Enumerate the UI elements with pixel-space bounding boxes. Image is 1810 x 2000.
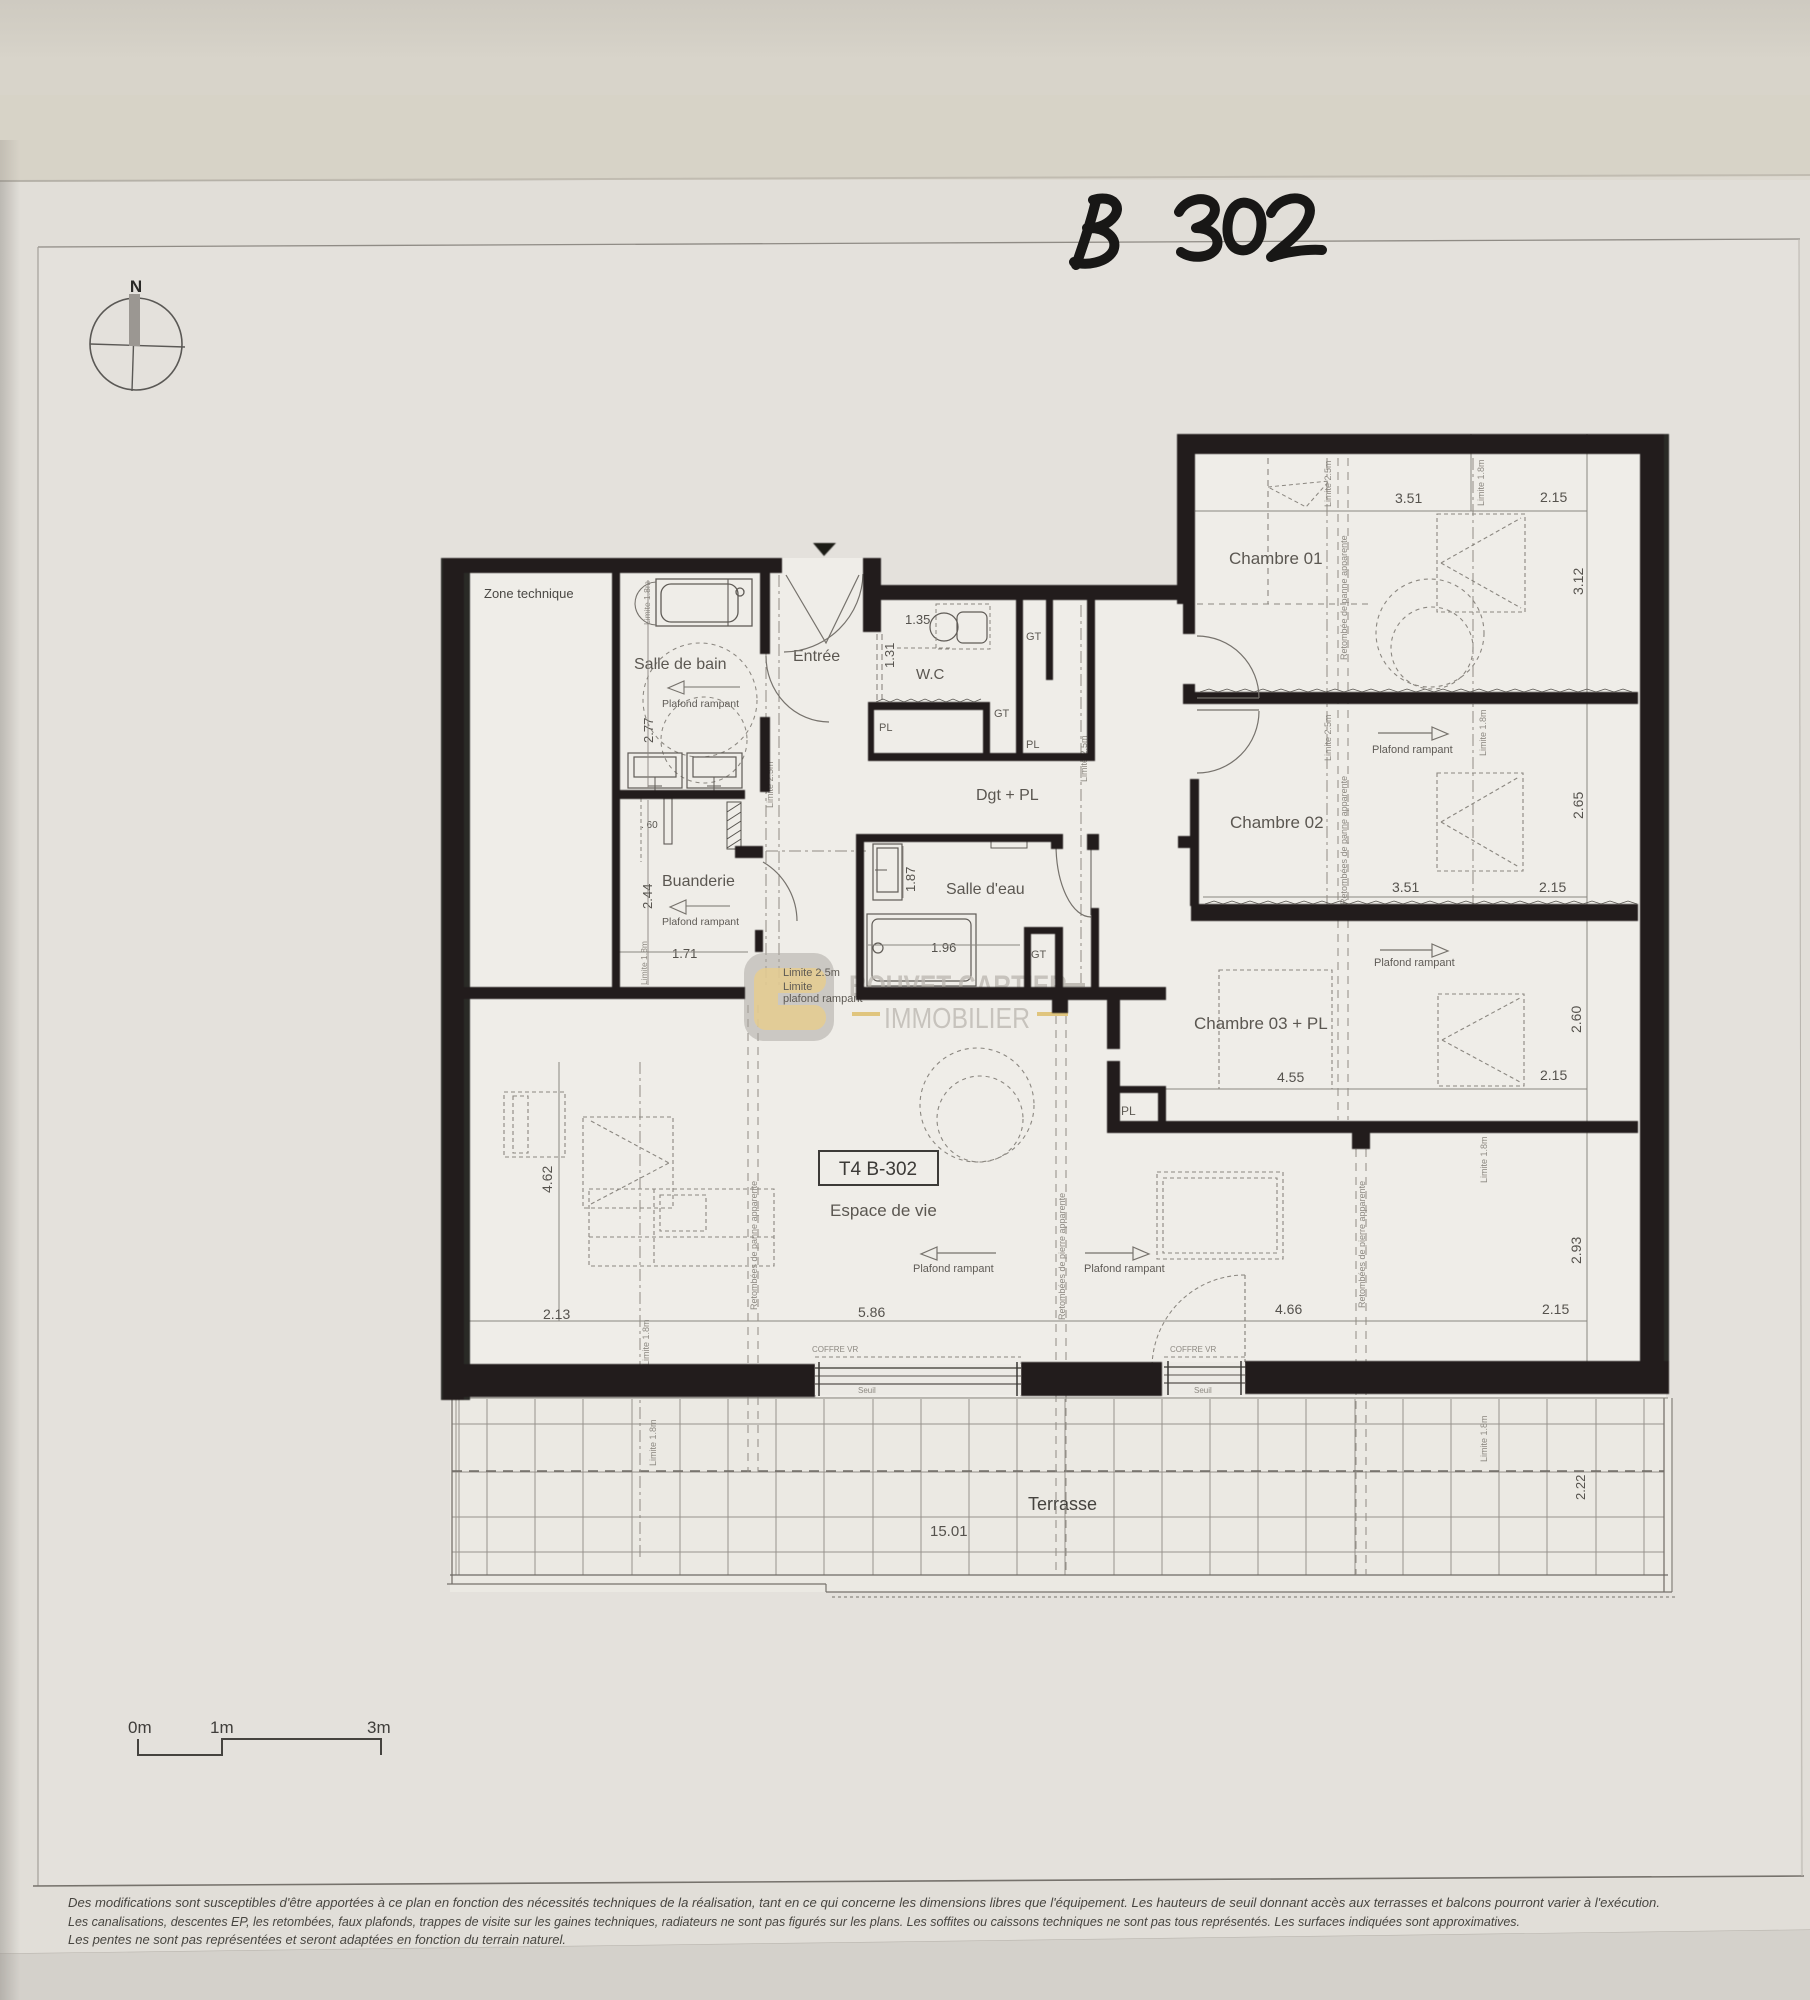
svg-text:Retombées de pierre apparente: Retombées de pierre apparente [1357, 1181, 1367, 1308]
svg-text:Salle d'eau: Salle d'eau [946, 881, 1025, 898]
svg-text:Retombées de panne apparente: Retombées de panne apparente [1339, 776, 1349, 905]
svg-text:2.15: 2.15 [1539, 879, 1566, 895]
svg-text:Buanderie: Buanderie [662, 873, 735, 890]
svg-text:COFFRE VR: COFFRE VR [1170, 1345, 1216, 1354]
svg-text:Limite 1.8m: Limite 1.8m [1479, 1136, 1489, 1183]
svg-text:2.77: 2.77 [641, 718, 656, 743]
svg-text:Retombées de pierre apparente: Retombées de pierre apparente [1057, 1193, 1067, 1320]
svg-text:Limite 1.8m: Limite 1.8m [648, 1419, 658, 1466]
svg-text:W.C: W.C [916, 666, 944, 683]
svg-text:Limite 1.8m: Limite 1.8m [641, 1319, 651, 1366]
svg-text:Terrasse: Terrasse [1028, 1494, 1097, 1514]
svg-text:Limite 2.5m: Limite 2.5m [1323, 714, 1333, 761]
svg-text:1.35: 1.35 [905, 612, 930, 627]
svg-text:plafond rampant: plafond rampant [783, 993, 863, 1005]
svg-text:Limite 1.8m: Limite 1.8m [1479, 1415, 1489, 1462]
svg-text:. 60: . 60 [641, 820, 658, 831]
svg-text:Plafond rampant: Plafond rampant [1372, 744, 1453, 756]
svg-text:Dgt + PL: Dgt + PL [976, 787, 1039, 804]
svg-text:1m: 1m [210, 1718, 234, 1737]
svg-text:Les pentes ne sont pas représe: Les pentes ne sont pas représentées et s… [68, 1932, 566, 1947]
svg-text:5.86: 5.86 [858, 1304, 885, 1320]
svg-text:3.51: 3.51 [1392, 879, 1419, 895]
svg-text:Limite: Limite [783, 981, 812, 993]
svg-text:15.01: 15.01 [930, 1523, 968, 1540]
svg-text:GT: GT [1031, 949, 1047, 961]
svg-text:Plafond rampant: Plafond rampant [913, 1263, 994, 1275]
svg-text:GT: GT [1026, 631, 1042, 643]
svg-text:Limite 1.8m: Limite 1.8m [1476, 459, 1486, 506]
svg-text:IMMOBILIER: IMMOBILIER [884, 1003, 1030, 1035]
svg-text:PL: PL [1026, 739, 1039, 751]
svg-text:2.44: 2.44 [640, 884, 655, 909]
svg-text:PL: PL [879, 722, 892, 734]
svg-text:1.96: 1.96 [931, 940, 956, 955]
svg-text:3m: 3m [367, 1718, 391, 1737]
svg-text:N: N [130, 277, 142, 296]
svg-text:1.87: 1.87 [903, 867, 918, 892]
svg-text:Limite 2.5m: Limite 2.5m [783, 967, 840, 979]
svg-text:Limite 2.5m: Limite 2.5m [1323, 460, 1333, 507]
svg-text:1.31: 1.31 [882, 643, 897, 668]
svg-text:3.12: 3.12 [1570, 568, 1586, 595]
svg-text:Espace de vie: Espace de vie [830, 1201, 937, 1220]
svg-text:T4 B-302: T4 B-302 [839, 1159, 917, 1180]
svg-text:2.93: 2.93 [1568, 1237, 1584, 1264]
svg-text:Retombées de panne apparente: Retombées de panne apparente [749, 1181, 759, 1310]
svg-text:Limite 1.8m: Limite 1.8m [642, 581, 652, 625]
svg-text:2.15: 2.15 [1540, 489, 1567, 505]
svg-text:1.71: 1.71 [672, 946, 697, 961]
svg-text:4.66: 4.66 [1275, 1301, 1302, 1317]
svg-text:Retombée de panne apparente: Retombée de panne apparente [1339, 535, 1349, 660]
svg-text:Chambre 02: Chambre 02 [1230, 813, 1324, 832]
svg-text:Des modifications sont suscept: Des modifications sont susceptibles d'êt… [68, 1895, 1660, 1910]
svg-text:4.55: 4.55 [1277, 1069, 1304, 1085]
svg-text:2.15: 2.15 [1540, 1067, 1567, 1083]
svg-text:Seuil: Seuil [858, 1386, 876, 1395]
svg-text:Plafond rampant: Plafond rampant [1374, 957, 1455, 969]
svg-text:Chambre 03 + PL: Chambre 03 + PL [1194, 1014, 1328, 1033]
svg-text:2.60: 2.60 [1568, 1006, 1584, 1033]
svg-text:Seuil: Seuil [1194, 1386, 1212, 1395]
svg-text:Les canalisations, descentes E: Les canalisations, descentes EP, les ret… [68, 1914, 1520, 1929]
svg-text:PL: PL [1121, 1104, 1136, 1118]
svg-text:Limite 1.8m: Limite 1.8m [639, 941, 649, 985]
svg-text:Plafond rampant: Plafond rampant [662, 916, 739, 928]
svg-text:Zone technique: Zone technique [484, 586, 574, 601]
svg-text:GT: GT [994, 708, 1010, 720]
svg-text:0m: 0m [128, 1718, 152, 1737]
svg-text:Limite 1.8m: Limite 1.8m [1478, 709, 1488, 756]
svg-text:2.65: 2.65 [1570, 792, 1586, 819]
svg-text:Plafond rampant: Plafond rampant [662, 698, 739, 710]
svg-text:3.51: 3.51 [1395, 490, 1422, 506]
svg-text:2.15: 2.15 [1542, 1301, 1569, 1317]
svg-text:COFFRE VR: COFFRE VR [812, 1345, 858, 1354]
svg-text:Chambre 01: Chambre 01 [1229, 549, 1323, 568]
svg-text:2.22: 2.22 [1573, 1475, 1588, 1500]
svg-text:Plafond rampant: Plafond rampant [1084, 1263, 1165, 1275]
svg-text:2.13: 2.13 [543, 1306, 570, 1322]
svg-text:4.62: 4.62 [539, 1166, 555, 1193]
